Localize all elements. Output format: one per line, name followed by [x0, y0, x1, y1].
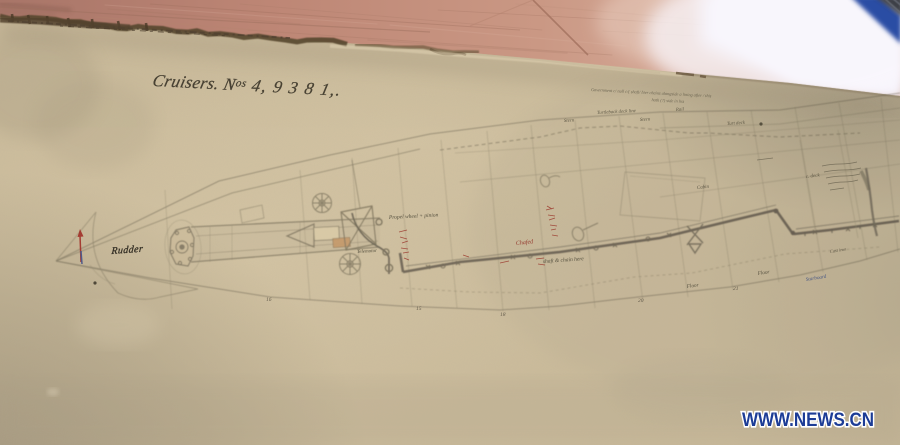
- svg-text:Rail: Rail: [675, 107, 685, 113]
- svg-text:18: 18: [500, 312, 506, 318]
- svg-text:21: 21: [733, 286, 739, 292]
- svg-text:Telemotor: Telemotor: [357, 249, 377, 255]
- svg-text:Stern: Stern: [640, 117, 651, 123]
- svg-text:20: 20: [638, 298, 644, 304]
- svg-text:16: 16: [266, 297, 272, 303]
- svg-text:15: 15: [416, 306, 422, 312]
- svg-text:Rudder: Rudder: [110, 244, 143, 257]
- svg-text:WWW.NEWS.CN: WWW.NEWS.CN: [742, 409, 874, 431]
- svg-text:Stern: Stern: [564, 118, 575, 124]
